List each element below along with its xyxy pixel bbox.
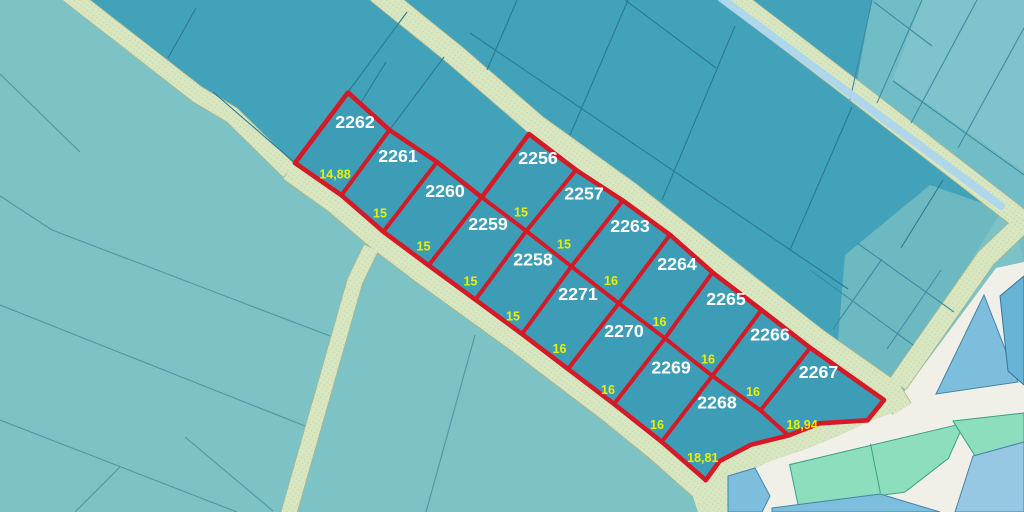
svg-text:15: 15: [506, 310, 520, 324]
svg-text:16: 16: [553, 342, 567, 356]
svg-text:2263: 2263: [610, 216, 650, 236]
svg-text:2262: 2262: [335, 112, 375, 132]
svg-text:16: 16: [601, 383, 615, 397]
svg-text:2267: 2267: [799, 362, 839, 382]
svg-text:2266: 2266: [750, 325, 790, 345]
svg-text:14,88: 14,88: [319, 168, 350, 182]
svg-text:15: 15: [464, 275, 478, 289]
svg-text:15: 15: [514, 206, 528, 220]
svg-text:15: 15: [373, 207, 387, 221]
svg-text:16: 16: [746, 385, 760, 399]
svg-text:18,94: 18,94: [786, 418, 817, 432]
svg-text:18,81: 18,81: [687, 451, 718, 465]
svg-text:2264: 2264: [657, 254, 697, 274]
svg-text:15: 15: [417, 240, 431, 254]
svg-text:16: 16: [701, 353, 715, 367]
svg-text:2259: 2259: [468, 214, 508, 234]
svg-text:2269: 2269: [651, 358, 691, 378]
svg-text:16: 16: [604, 274, 618, 288]
svg-text:2268: 2268: [697, 393, 737, 413]
svg-text:16: 16: [650, 418, 664, 432]
svg-text:2258: 2258: [513, 250, 553, 270]
svg-text:2270: 2270: [604, 321, 644, 341]
svg-text:16: 16: [653, 315, 667, 329]
svg-text:2265: 2265: [706, 289, 746, 309]
svg-text:2256: 2256: [518, 148, 558, 168]
svg-text:2260: 2260: [425, 181, 465, 201]
svg-text:2257: 2257: [564, 184, 604, 204]
svg-text:2261: 2261: [378, 146, 418, 166]
svg-text:15: 15: [557, 238, 571, 252]
svg-text:2271: 2271: [558, 284, 598, 304]
